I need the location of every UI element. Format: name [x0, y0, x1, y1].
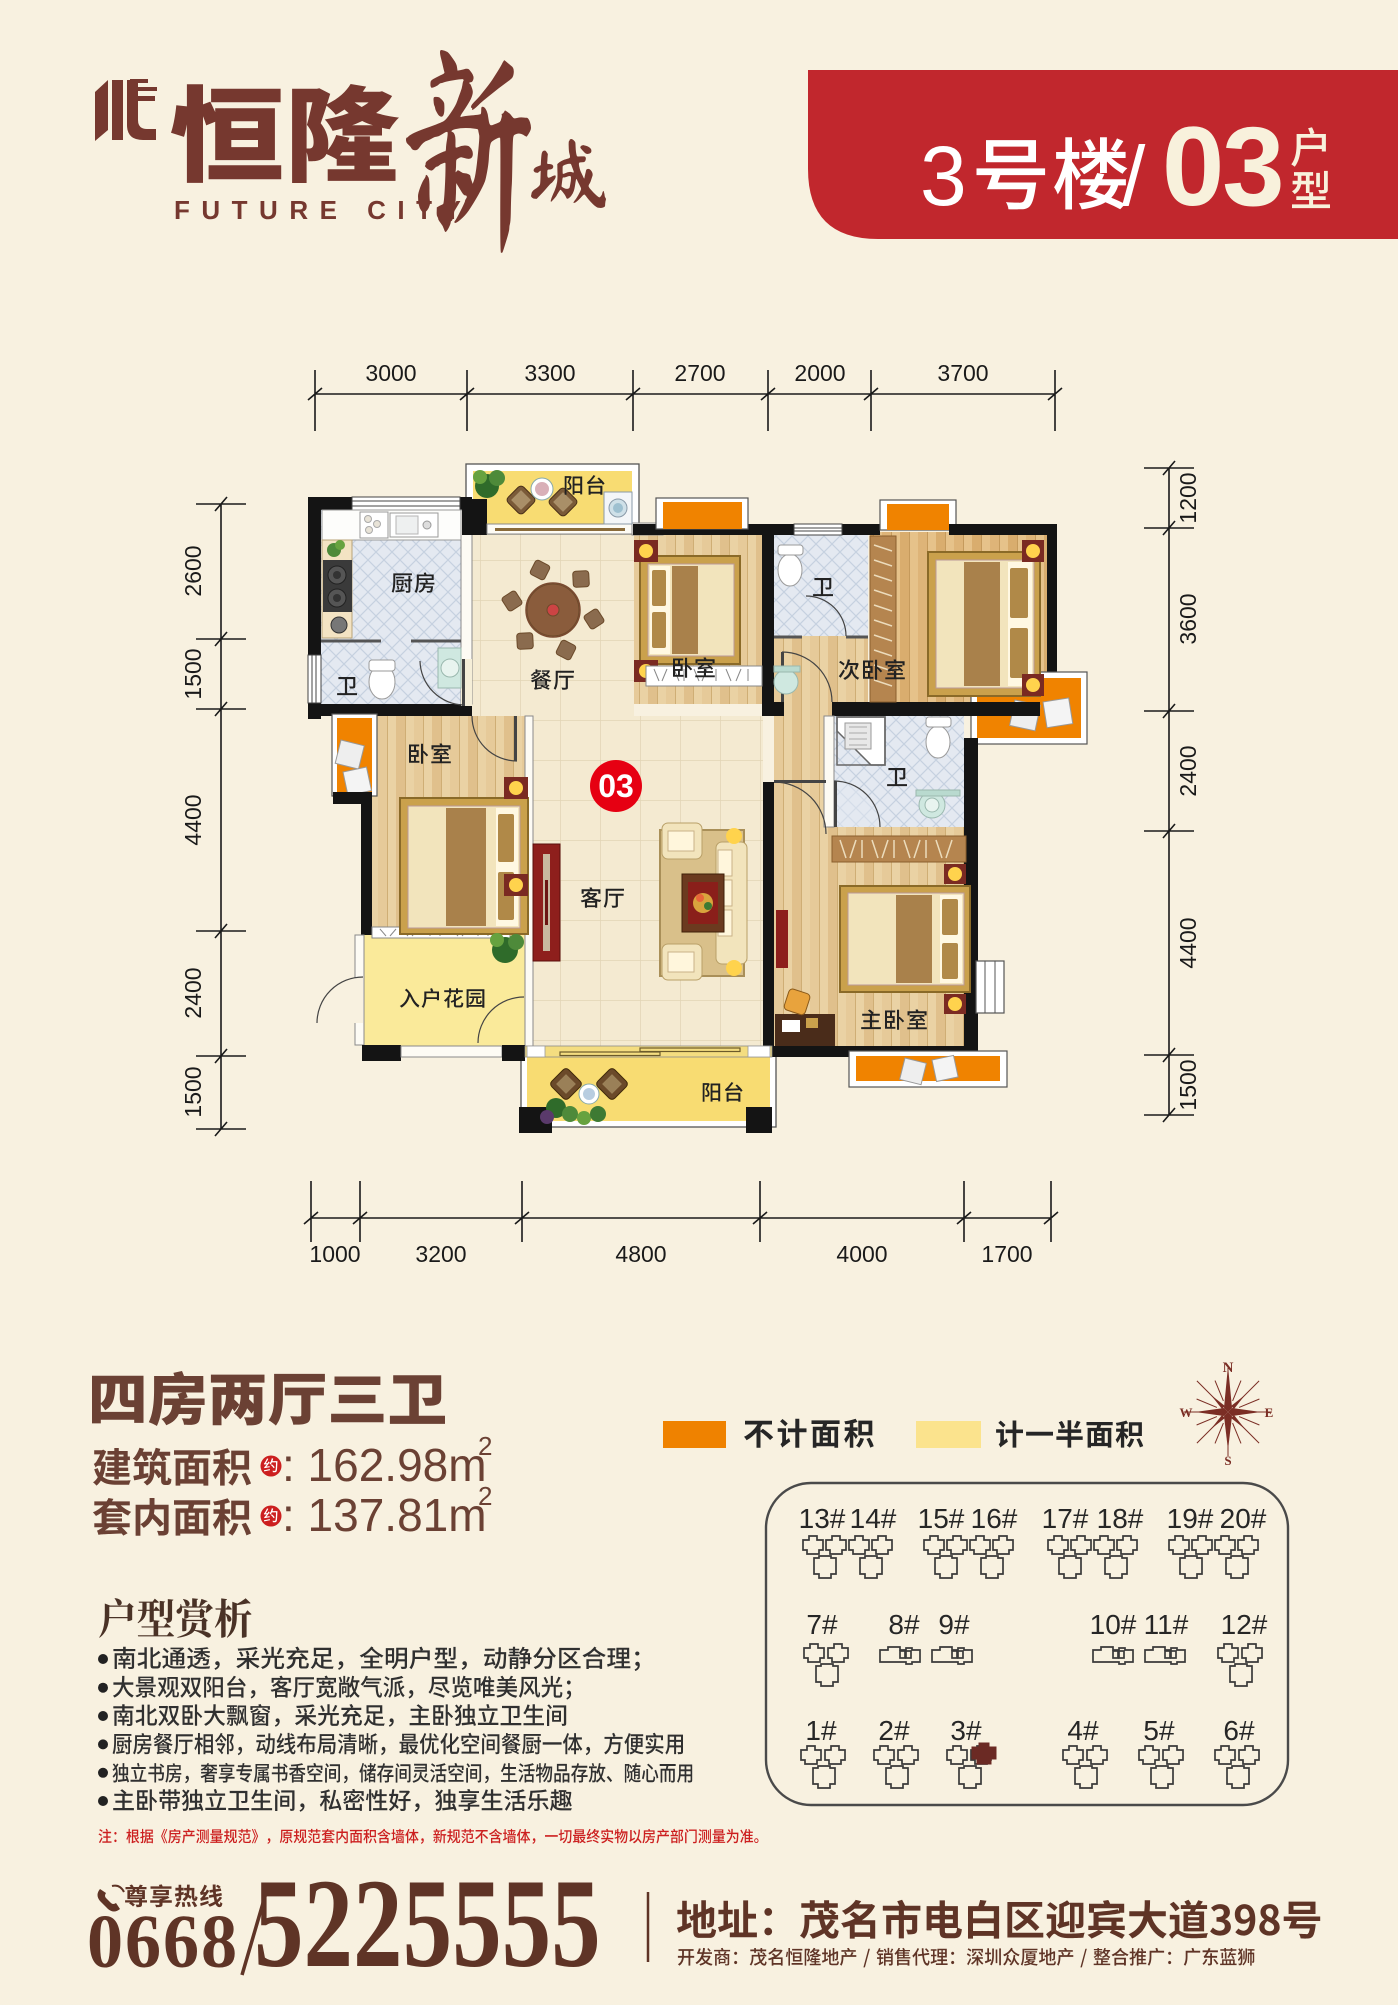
- svg-text:4000: 4000: [836, 1241, 887, 1267]
- svg-text:2700: 2700: [674, 360, 725, 386]
- svg-text:3000: 3000: [365, 360, 416, 386]
- svg-text:17#: 17#: [1042, 1503, 1089, 1534]
- svg-text:13#: 13#: [799, 1503, 846, 1534]
- svg-text:12#: 12#: [1221, 1609, 1268, 1640]
- svg-text:1500: 1500: [180, 1066, 206, 1117]
- svg-text:3200: 3200: [415, 1241, 466, 1267]
- svg-text:15#: 15#: [918, 1503, 965, 1534]
- svg-text:14#: 14#: [850, 1503, 897, 1534]
- svg-text:2400: 2400: [1175, 745, 1201, 796]
- svg-text:2400: 2400: [180, 967, 206, 1018]
- svg-text:7#: 7#: [806, 1609, 838, 1640]
- svg-text:W: W: [1180, 1405, 1193, 1420]
- svg-text:3600: 3600: [1175, 593, 1201, 644]
- svg-text:1#: 1#: [805, 1715, 837, 1746]
- svg-text:6#: 6#: [1223, 1715, 1255, 1746]
- svg-text:5#: 5#: [1143, 1715, 1175, 1746]
- svg-text:03: 03: [1162, 104, 1283, 229]
- svg-text:2000: 2000: [794, 360, 845, 386]
- svg-text:16#: 16#: [971, 1503, 1018, 1534]
- svg-text:1200: 1200: [1175, 472, 1201, 523]
- svg-text:S: S: [1224, 1453, 1231, 1468]
- svg-text:19#: 19#: [1167, 1503, 1214, 1534]
- svg-text:03: 03: [598, 768, 634, 804]
- svg-text:4400: 4400: [180, 794, 206, 845]
- svg-text:5225555: 5225555: [254, 1853, 601, 1994]
- svg-text:/: /: [1122, 129, 1146, 223]
- svg-text:E: E: [1265, 1405, 1274, 1420]
- svg-text:1700: 1700: [981, 1241, 1032, 1267]
- svg-text:2: 2: [478, 1481, 492, 1511]
- svg-text:4#: 4#: [1067, 1715, 1099, 1746]
- svg-text:20#: 20#: [1220, 1503, 1267, 1534]
- svg-text:1500: 1500: [1175, 1059, 1201, 1110]
- svg-text:3#: 3#: [950, 1715, 982, 1746]
- svg-text:2#: 2#: [878, 1715, 910, 1746]
- svg-text:FUTURE CITY: FUTURE CITY: [174, 195, 472, 225]
- svg-text:4800: 4800: [615, 1241, 666, 1267]
- svg-text:8#: 8#: [888, 1609, 920, 1640]
- svg-text:: 137.81m: : 137.81m: [282, 1489, 487, 1541]
- svg-text:18#: 18#: [1097, 1503, 1144, 1534]
- svg-text:2: 2: [478, 1431, 492, 1461]
- svg-text:1000: 1000: [309, 1241, 360, 1267]
- svg-text:3300: 3300: [524, 360, 575, 386]
- svg-text:0668: 0668: [87, 1900, 239, 1984]
- svg-text:11#: 11#: [1144, 1609, 1189, 1640]
- svg-text:3700: 3700: [937, 360, 988, 386]
- svg-text:3: 3: [920, 129, 967, 223]
- svg-text:4400: 4400: [1175, 917, 1201, 968]
- svg-text:9#: 9#: [938, 1609, 970, 1640]
- svg-text:N: N: [1223, 1360, 1234, 1376]
- svg-text:10#: 10#: [1090, 1609, 1137, 1640]
- svg-text:2600: 2600: [180, 545, 206, 596]
- svg-text:1500: 1500: [180, 648, 206, 699]
- svg-text:: 162.98m: : 162.98m: [282, 1439, 487, 1491]
